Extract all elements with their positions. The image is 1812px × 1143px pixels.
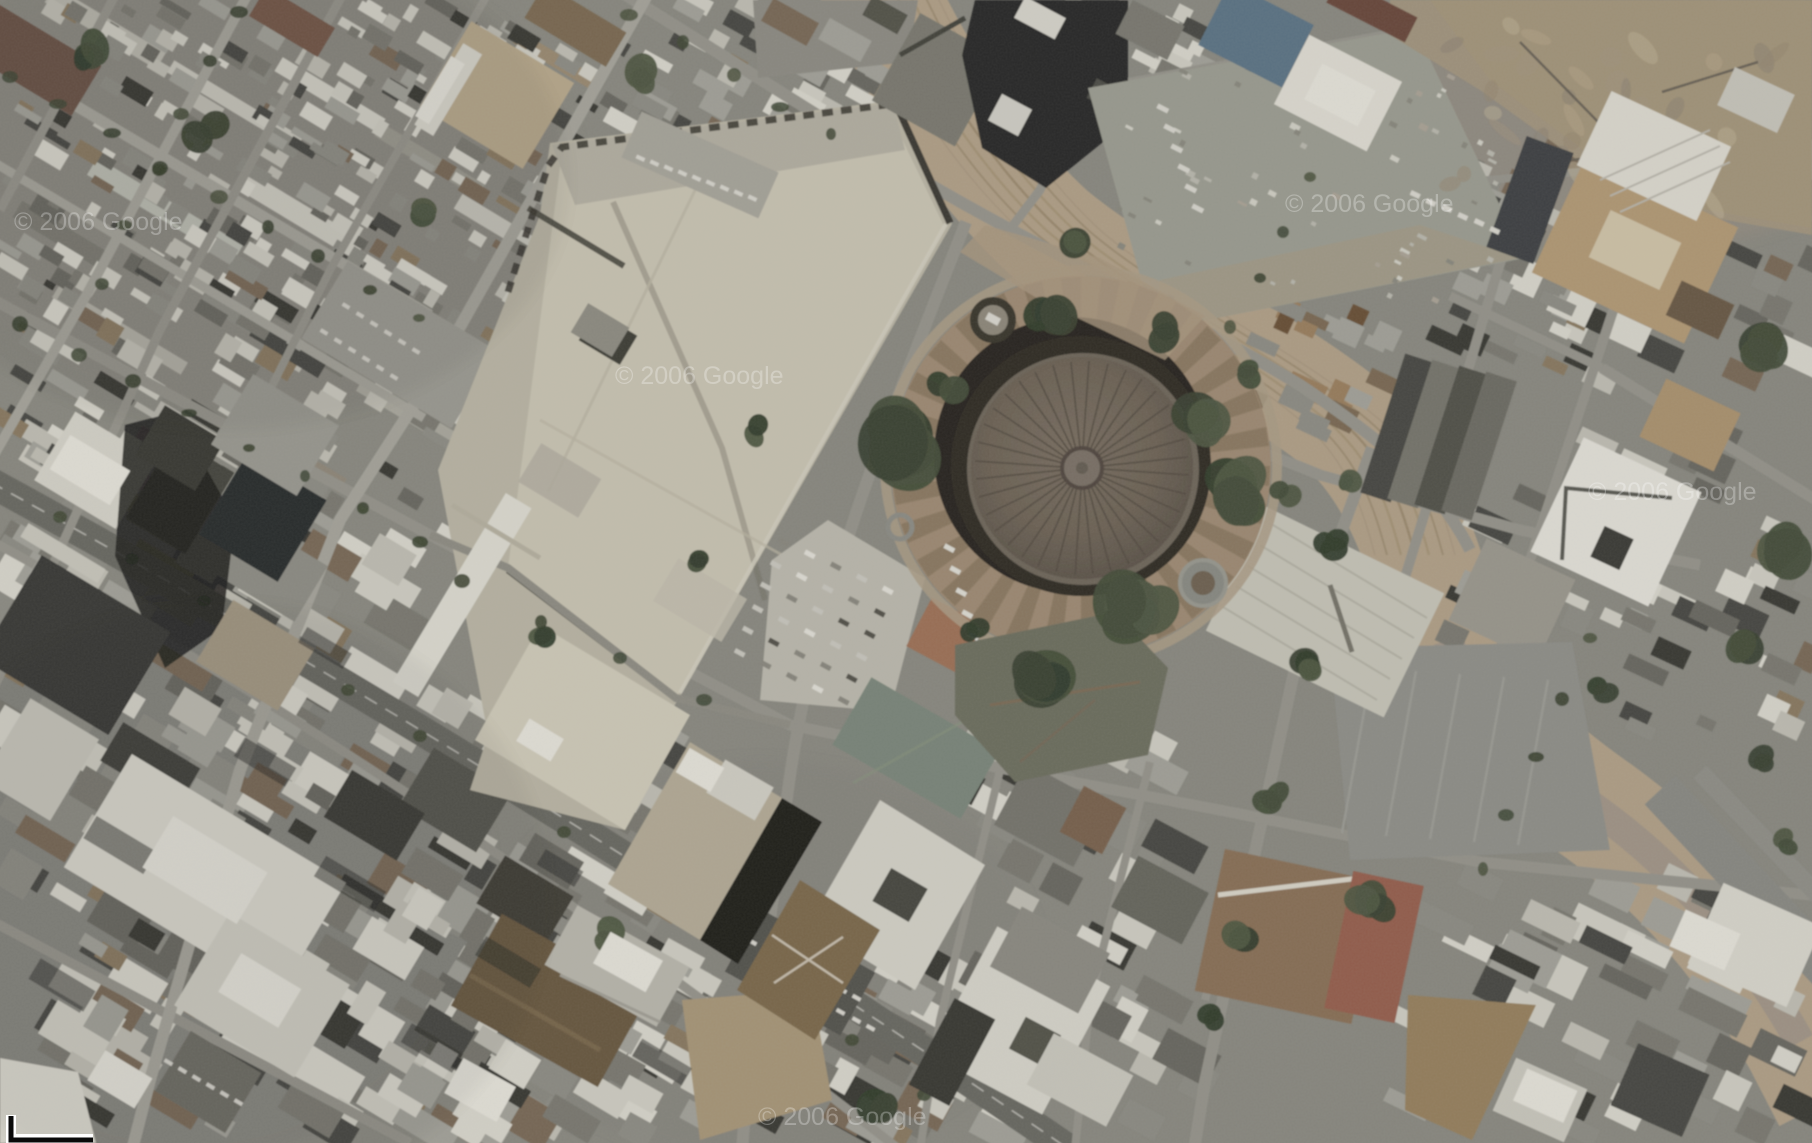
svg-text:© 2006 Google: © 2006 Google xyxy=(615,362,784,390)
svg-text:© 2006 Google: © 2006 Google xyxy=(1588,478,1757,506)
svg-text:© 2006 Google: © 2006 Google xyxy=(1285,190,1454,218)
svg-text:© 2006 Google: © 2006 Google xyxy=(758,1103,927,1131)
svg-text:© 2006 Google: © 2006 Google xyxy=(14,208,183,236)
